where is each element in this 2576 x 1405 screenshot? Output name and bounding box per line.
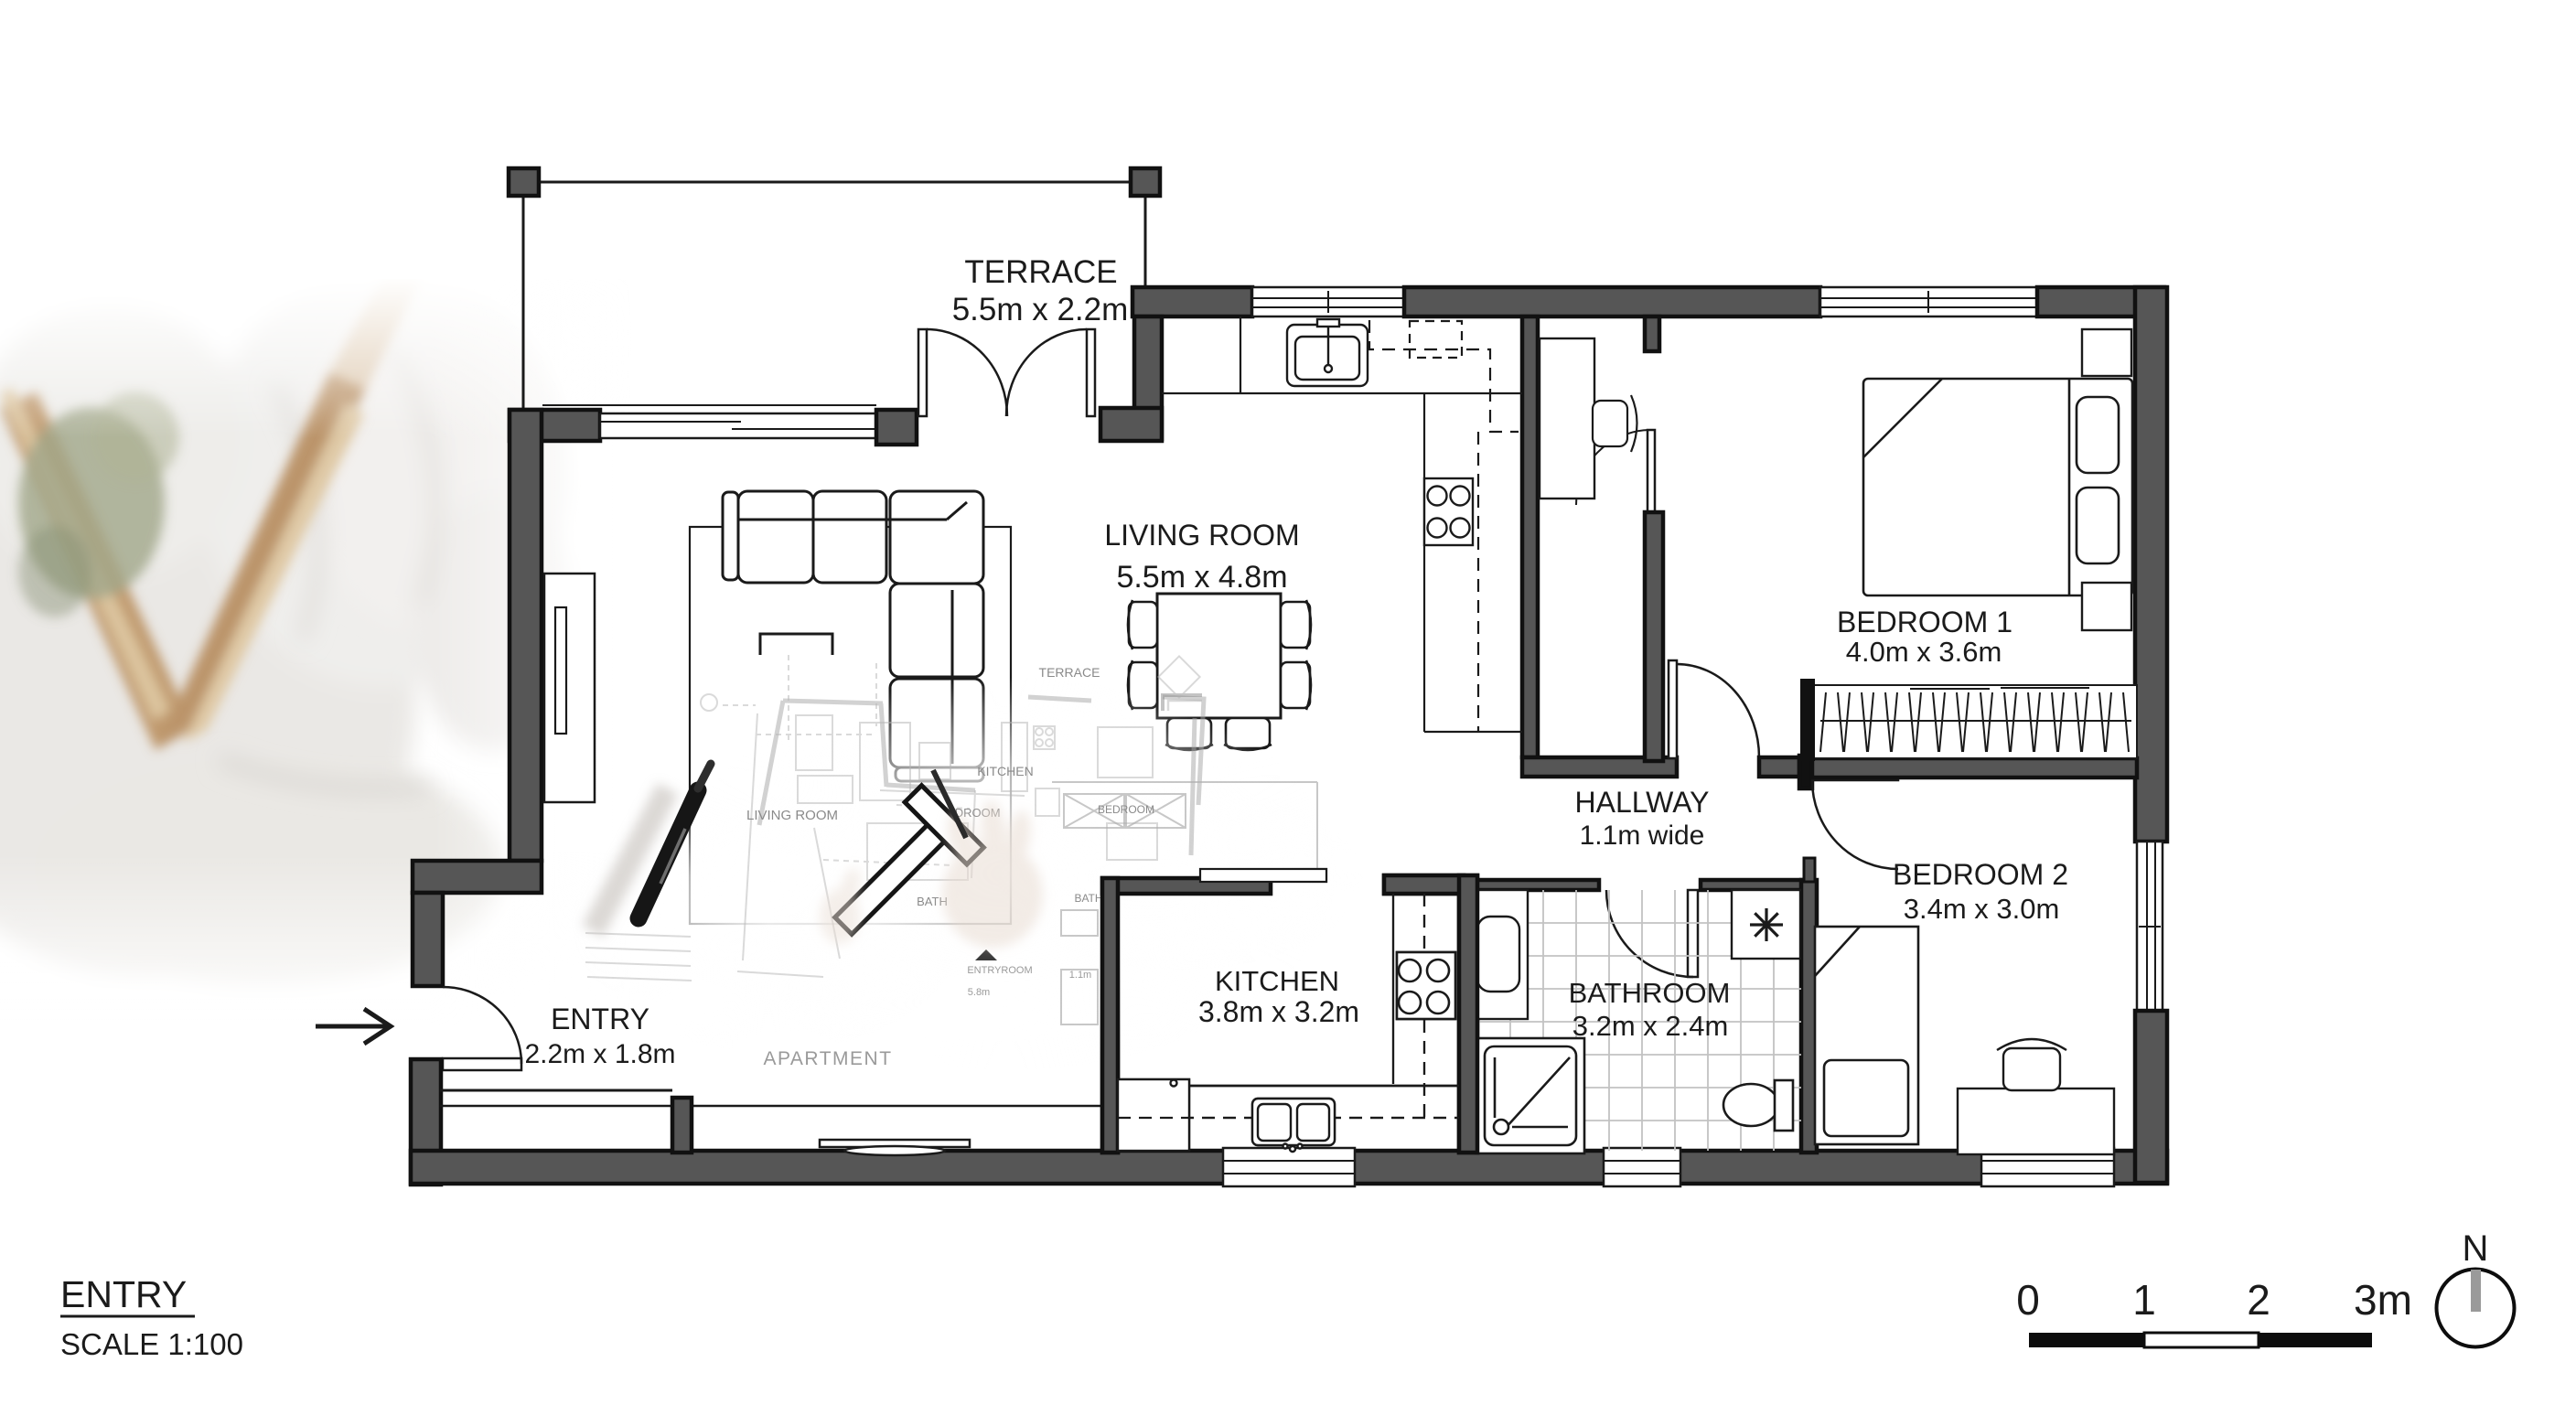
svg-text:3.4m x 3.0m: 3.4m x 3.0m [1904,893,2060,925]
svg-text:4.0m x 3.6m: 4.0m x 3.6m [1846,636,2002,668]
svg-text:5.5m x 2.2m: 5.5m x 2.2m [952,292,1129,327]
svg-text:2: 2 [2247,1276,2270,1324]
svg-text:3.2m x 2.4m: 3.2m x 2.4m [1572,1010,1729,1042]
svg-text:1.1m wide: 1.1m wide [1580,820,1705,851]
svg-text:LIVING ROOM: LIVING ROOM [746,808,838,823]
svg-text:ENTRY: ENTRY [60,1273,187,1315]
svg-text:TERRACE: TERRACE [1039,665,1100,680]
svg-text:5.5m x 4.8m: 5.5m x 4.8m [1116,560,1287,595]
svg-text:LIVING ROOM: LIVING ROOM [1104,519,1299,552]
svg-text:3.8m x 3.2m: 3.8m x 3.2m [1198,995,1359,1028]
svg-text:APARTMENT: APARTMENT [763,1048,892,1069]
svg-text:N: N [2463,1228,2489,1269]
svg-text:ENTRY: ENTRY [551,1003,649,1035]
svg-text:KITCHEN: KITCHEN [1215,965,1339,997]
svg-text:BEDROOM 2: BEDROOM 2 [1893,858,2068,891]
svg-text:BEDROOM: BEDROOM [1098,803,1154,816]
svg-text:0: 0 [2016,1276,2040,1324]
svg-text:BATH: BATH [1074,892,1102,905]
svg-text:TERRACE: TERRACE [964,254,1117,290]
svg-text:1.1m: 1.1m [1069,970,1091,981]
svg-text:1: 1 [2132,1276,2156,1324]
svg-text:2.2m x 1.8m: 2.2m x 1.8m [524,1039,675,1069]
svg-text:ENTRYROOM: ENTRYROOM [967,965,1032,976]
svg-text:BEDROOM 1: BEDROOM 1 [1837,606,2012,638]
svg-text:KITCHEN: KITCHEN [977,764,1033,778]
svg-text:BATHROOM: BATHROOM [1569,977,1731,1009]
svg-text:HALLWAY: HALLWAY [1575,786,1710,819]
svg-text:5.8m: 5.8m [968,987,990,998]
svg-text:3m: 3m [2354,1276,2412,1324]
svg-text:SCALE 1:100: SCALE 1:100 [60,1327,243,1361]
